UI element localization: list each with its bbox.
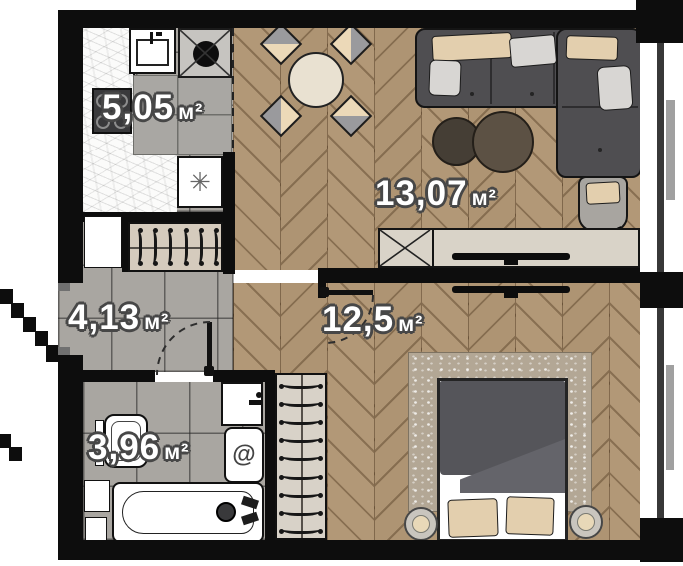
nightstand — [404, 507, 438, 541]
area-unit: м² — [164, 439, 189, 464]
hanger-icon — [281, 379, 321, 389]
washing-machine: @ — [224, 427, 264, 483]
hanger-icon — [281, 470, 321, 480]
bathroom-shelf — [84, 480, 110, 512]
wall — [58, 10, 83, 212]
nightstand — [569, 505, 603, 539]
hallway-zone-divider — [232, 272, 234, 372]
area-unit: м² — [472, 185, 497, 210]
tv-stand — [504, 260, 518, 265]
washing-machine-icon: @ — [226, 429, 262, 481]
window-glazing — [657, 308, 664, 518]
tv-living-room — [452, 253, 570, 260]
armchair — [578, 176, 628, 232]
floor-plan: ✳ @ — [0, 0, 683, 566]
door-jamb — [58, 283, 70, 291]
sofa-button — [470, 92, 474, 96]
stairs-icon — [9, 447, 22, 461]
area-value: 5,05 — [102, 88, 174, 127]
wall — [58, 540, 683, 560]
bedroom-door-hinge — [320, 287, 329, 297]
console-cabinet — [380, 230, 434, 266]
hanger-icon — [133, 230, 142, 264]
wall — [318, 268, 640, 283]
faucet-handle-icon — [256, 392, 262, 398]
bathroom-area-label: 3,96м² — [88, 428, 189, 468]
kitchen-countertop-return — [83, 150, 177, 212]
sofa-pillow — [431, 32, 512, 62]
hanger-icon — [194, 230, 203, 264]
bed-pillow — [505, 496, 554, 536]
area-value: 12,5 — [322, 300, 394, 339]
wall — [265, 370, 275, 542]
bathroom-door-hinge — [204, 366, 214, 376]
stairs-icon — [0, 434, 11, 448]
wardrobe — [275, 373, 327, 540]
tv-bedroom — [452, 286, 570, 293]
kitchen-sink — [129, 28, 176, 74]
hanger-icon — [281, 524, 321, 534]
sofa-pillow — [566, 35, 619, 61]
bed — [437, 378, 568, 542]
floor-plank-column — [609, 283, 640, 540]
area-unit: м² — [178, 99, 203, 124]
hanger-icon — [163, 230, 172, 264]
stairs-icon — [23, 317, 36, 332]
fridge: ✳ — [177, 156, 223, 208]
stairs-icon — [46, 345, 58, 362]
wall — [58, 212, 83, 283]
wall — [640, 272, 683, 308]
hanger-icon — [179, 230, 188, 264]
wall — [58, 355, 83, 540]
armchair-pillow — [585, 181, 620, 205]
living-room-area-label: 13,07м² — [375, 174, 497, 214]
area-value: 3,96 — [88, 428, 160, 467]
bathroom-sink — [221, 382, 263, 426]
wall — [83, 370, 155, 382]
hanger-icon — [281, 415, 321, 425]
wall — [122, 212, 128, 272]
bathtub — [112, 482, 264, 543]
floor-plank-column — [233, 28, 280, 270]
tv-stand — [504, 293, 518, 298]
hallway-area-label: 4,13м² — [68, 298, 169, 338]
sofa-button — [598, 148, 602, 152]
hanger-icon — [281, 397, 321, 407]
hanger-icon — [281, 433, 321, 443]
coat-rack — [128, 222, 223, 272]
entrance-door — [84, 216, 122, 268]
faucet-icon — [249, 400, 263, 405]
bed-pillow — [447, 498, 498, 538]
wall — [636, 0, 683, 43]
window-sill — [666, 365, 674, 470]
cooktop-icon — [193, 41, 219, 67]
fridge-icon: ✳ — [179, 158, 221, 206]
hanger-icon — [148, 230, 157, 264]
stairs-icon — [11, 303, 24, 318]
hanger-icon — [281, 506, 321, 516]
sofa-button — [530, 92, 534, 96]
wall — [223, 152, 235, 274]
area-value: 4,13 — [68, 298, 140, 337]
window-glazing — [657, 43, 664, 272]
dining-table — [288, 52, 344, 108]
kitchen-area-label: 5,05м² — [102, 88, 203, 128]
sofa-pillow — [428, 59, 461, 96]
door-jamb — [58, 347, 70, 355]
bedroom-door-leaf — [325, 290, 373, 295]
area-unit: м² — [144, 309, 169, 334]
bathtub-drain-icon — [216, 502, 236, 522]
coffee-table-large — [472, 111, 534, 173]
sofa-pillow — [509, 34, 557, 68]
bedroom-area-label: 12,5м² — [322, 300, 423, 340]
wall — [58, 10, 660, 28]
area-value: 13,07 — [375, 174, 468, 213]
sofa-pillow — [597, 65, 634, 111]
faucet-icon — [150, 32, 153, 44]
bathroom-shelf — [85, 517, 107, 541]
kitchen-corner-unit — [178, 28, 232, 78]
hanger-icon — [281, 451, 321, 461]
area-unit: м² — [398, 311, 423, 336]
stairs-icon — [0, 289, 13, 304]
stairs-icon — [35, 331, 48, 346]
hanger-icon — [281, 488, 321, 498]
window-sill — [666, 100, 675, 200]
faucet-handle-icon — [156, 32, 162, 36]
hanger-icon — [209, 230, 218, 264]
